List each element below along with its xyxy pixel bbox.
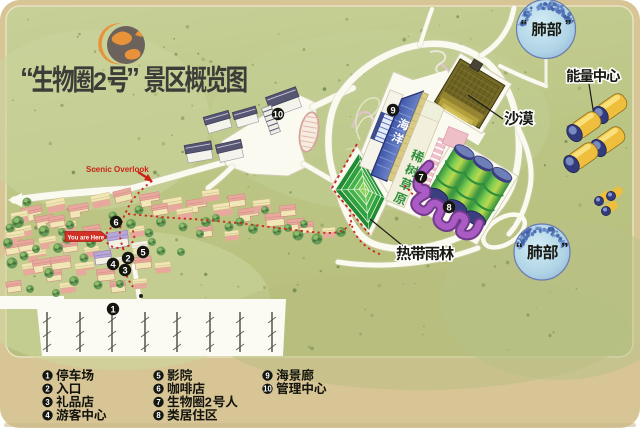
svg-text:”: ” (126, 62, 140, 93)
svg-text:6: 6 (113, 217, 118, 227)
svg-text:”: ” (564, 18, 571, 34)
svg-text:“: “ (520, 18, 527, 34)
svg-text:8: 8 (446, 202, 451, 212)
svg-text:2: 2 (125, 253, 130, 263)
svg-text:9: 9 (390, 105, 395, 115)
svg-text:2: 2 (93, 68, 107, 96)
svg-text:3: 3 (122, 265, 127, 275)
svg-text:3: 3 (45, 398, 50, 407)
svg-text:7: 7 (156, 398, 160, 407)
svg-text:1: 1 (45, 371, 50, 380)
svg-text:10: 10 (273, 109, 283, 119)
svg-text:7: 7 (418, 172, 423, 182)
svg-text:4: 4 (45, 411, 50, 420)
svg-text:6: 6 (156, 385, 161, 394)
svg-text:5: 5 (140, 247, 145, 257)
svg-text:“: “ (20, 62, 34, 93)
svg-text:1: 1 (110, 304, 115, 314)
svg-text:8: 8 (156, 411, 161, 420)
svg-text:“: “ (515, 240, 523, 257)
svg-text:”: ” (561, 240, 569, 257)
svg-text:10: 10 (263, 385, 272, 394)
svg-text:9: 9 (265, 371, 270, 380)
svg-text:You are Here: You are Here (68, 236, 105, 242)
svg-text:2: 2 (205, 394, 212, 409)
svg-text:5: 5 (156, 371, 161, 380)
svg-text:2: 2 (45, 385, 50, 394)
svg-text:4: 4 (110, 259, 116, 269)
